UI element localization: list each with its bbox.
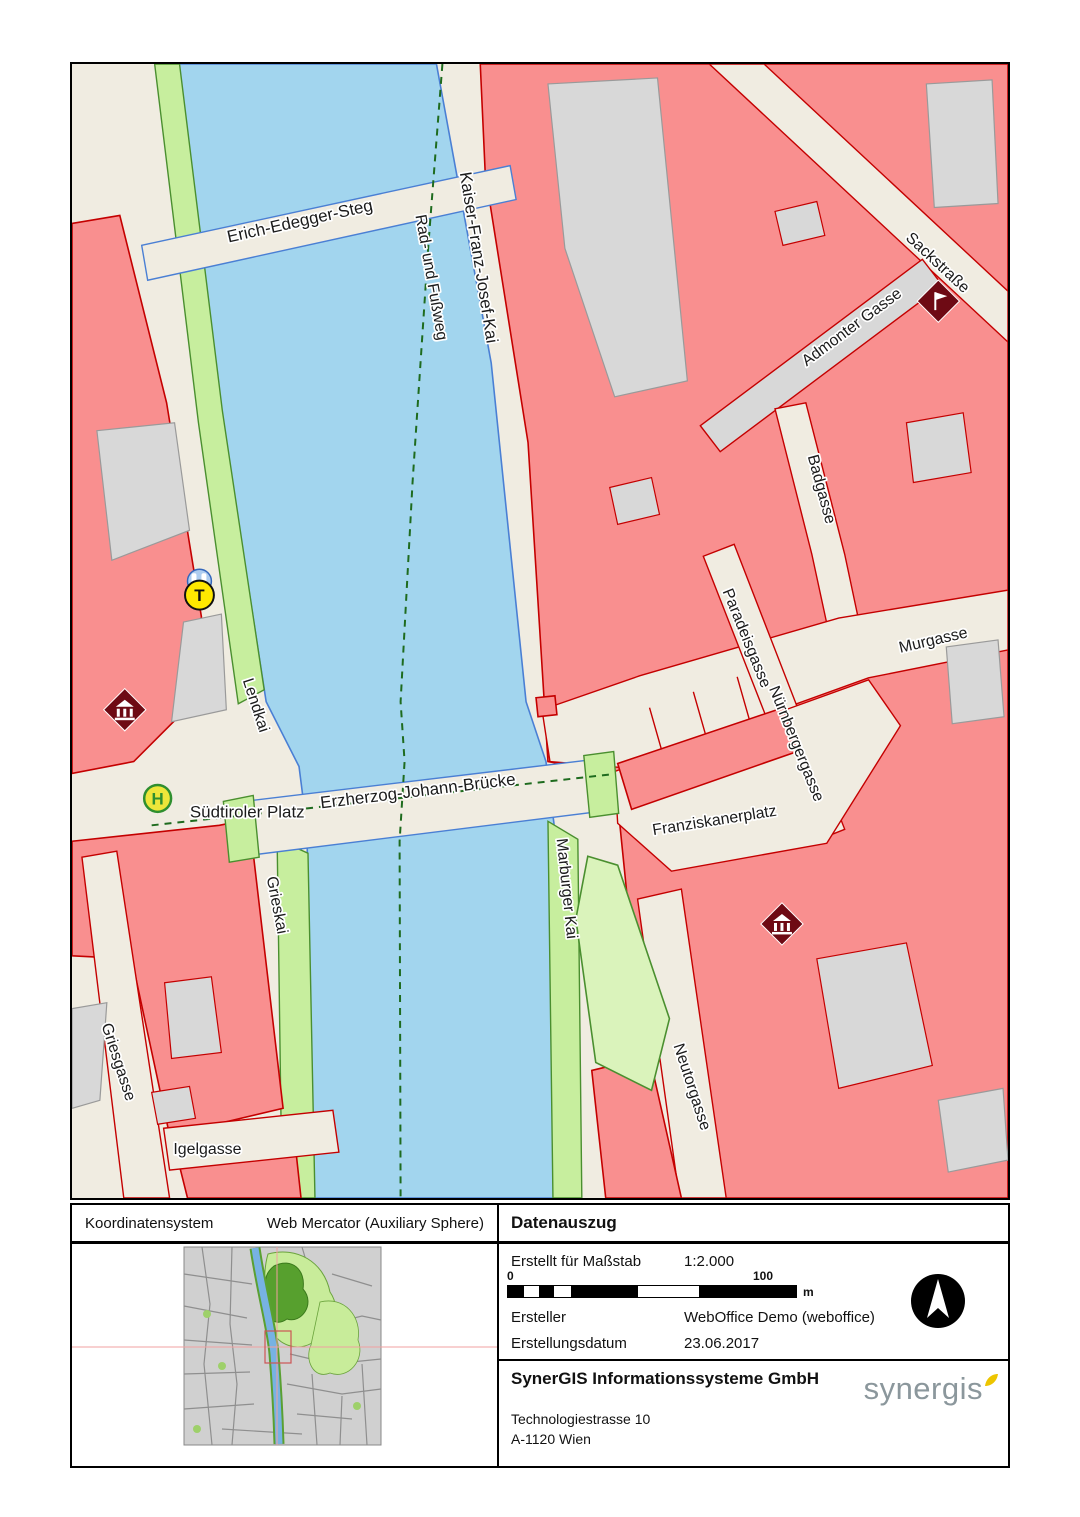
scale-bar: 0 100 m: [507, 1285, 817, 1299]
massstab-value: 1:2.000: [684, 1253, 734, 1270]
koordinatensystem-value: Web Mercator (Auxiliary Sphere): [267, 1215, 484, 1232]
bus-stop-letter: H: [152, 789, 164, 808]
gray-building: [926, 80, 998, 208]
scale-start-label: 0: [507, 1269, 514, 1283]
coordinate-system-cell: Koordinatensystem Web Mercator (Auxiliar…: [72, 1205, 499, 1466]
scale-end-label: 100: [753, 1269, 773, 1283]
address-line-1: Technologiestrasse 10: [511, 1409, 650, 1429]
city-map: T H Erich-Edegger-Steg Kaiser-Franz-Jose…: [72, 64, 1008, 1198]
massstab-label: Erstellt für Maßstab: [511, 1253, 641, 1270]
address-line-2: A-1120 Wien: [511, 1429, 650, 1449]
data-extract-cell: Datenauszug Erstellt für Maßstab 1:2.000…: [499, 1205, 1008, 1466]
gray-building: [906, 413, 971, 483]
ersteller-value: WebOffice Demo (weboffice): [684, 1309, 875, 1326]
footer-panel: Koordinatensystem Web Mercator (Auxiliar…: [70, 1203, 1010, 1468]
bridgehead-green-east: [584, 752, 619, 818]
gray-building: [165, 977, 222, 1059]
gray-building: [152, 1086, 196, 1124]
scale-bar-segments: [507, 1285, 797, 1298]
company-address: Technologiestrasse 10 A-1120 Wien: [511, 1409, 650, 1449]
datenauszug-title: Datenauszug: [511, 1213, 617, 1233]
bus-stop-icon[interactable]: H: [144, 785, 171, 812]
tram-stop-letter: T: [194, 586, 205, 605]
gray-building: [946, 640, 1004, 724]
synergis-logo-text: synergis: [864, 1371, 983, 1407]
map-canvas[interactable]: T H Erich-Edegger-Steg Kaiser-Franz-Jose…: [70, 62, 1010, 1200]
panel-divider: [499, 1359, 1008, 1361]
company-name: SynerGIS Informationssysteme GmbH: [511, 1369, 819, 1389]
synergis-leaf-icon: [984, 1373, 1000, 1389]
pier-building: [536, 696, 557, 717]
massstab-row: Erstellt für Maßstab 1:2.000: [511, 1253, 641, 1270]
gray-building: [938, 1088, 1008, 1172]
synergis-logo: synergis: [864, 1371, 1000, 1407]
gray-building: [72, 1003, 107, 1109]
street-label-igelgasse: Igelgasse: [173, 1141, 241, 1158]
north-arrow-icon: [908, 1271, 968, 1331]
erstellungsdatum-row: Erstellungsdatum 23.06.2017: [511, 1335, 627, 1352]
overview-minimap[interactable]: [72, 1244, 497, 1464]
koordinatensystem-label: Koordinatensystem: [85, 1215, 213, 1232]
erstellungsdatum-value: 23.06.2017: [684, 1335, 759, 1352]
scale-unit-label: m: [803, 1285, 814, 1299]
ersteller-row: Ersteller WebOffice Demo (weboffice): [511, 1309, 566, 1326]
place-label-suedtiroler-platz: Südtiroler Platz: [190, 802, 305, 821]
erstellungsdatum-label: Erstellungsdatum: [511, 1335, 627, 1352]
ersteller-label: Ersteller: [511, 1309, 566, 1326]
tram-stop-icon[interactable]: T: [185, 581, 214, 610]
